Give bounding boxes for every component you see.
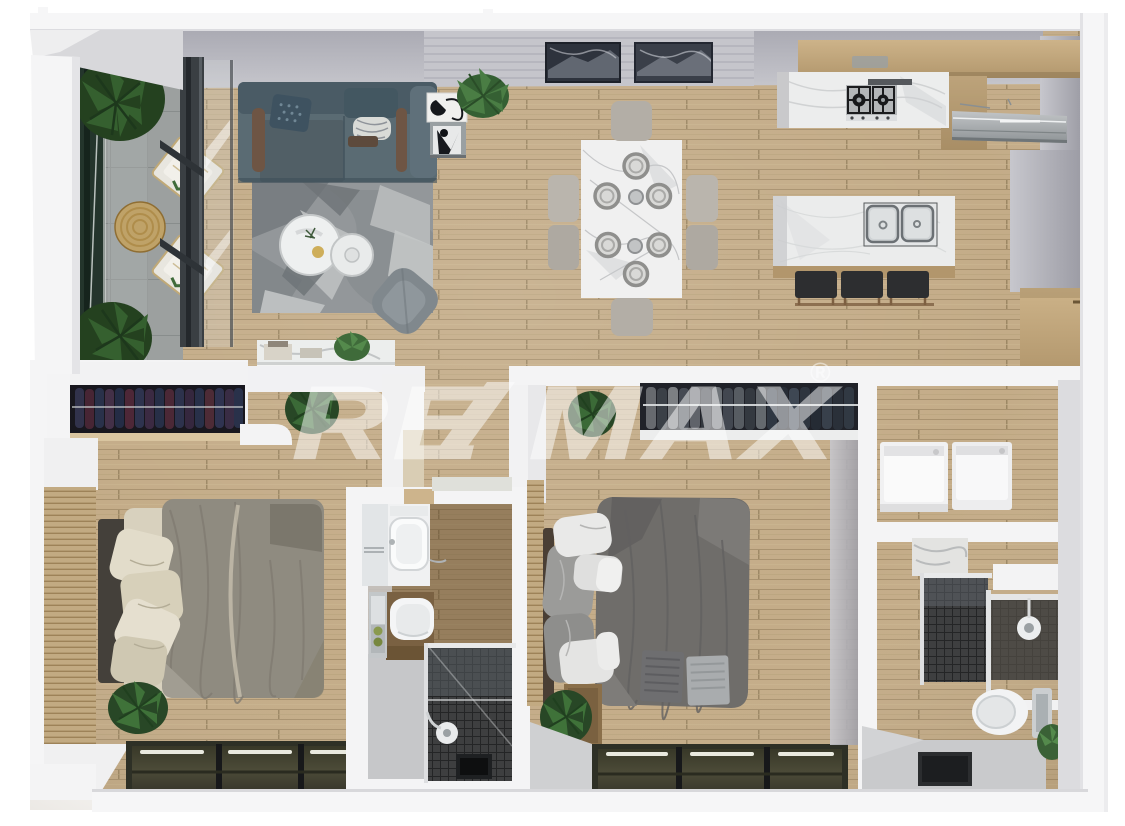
svg-text:RE MAX: RE MAX	[293, 366, 839, 480]
svg-text:®: ®	[810, 357, 831, 388]
